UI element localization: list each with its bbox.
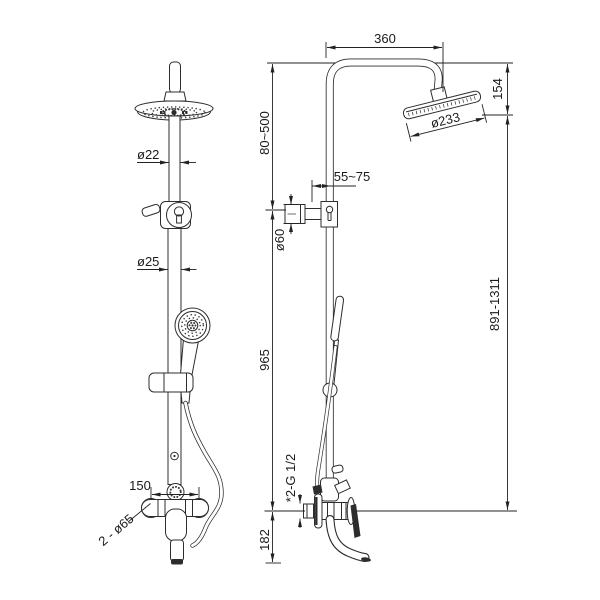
dim-label-55-75: 55~75 (334, 169, 371, 184)
dim-80-500: 80~500 (257, 64, 286, 210)
dim-label-o25: ø25 (137, 254, 159, 269)
aerator (171, 559, 183, 565)
dim-label-o22: ø22 (137, 147, 159, 162)
dim-label-154: 154 (490, 78, 505, 100)
dim-label-g12: *2-G 1/2 (283, 454, 298, 502)
upper-pipe-front (169, 116, 180, 203)
dim-label-891-1311: 891-1311 (487, 277, 502, 331)
dim-150: 150 (129, 478, 199, 500)
mixer-side (304, 494, 372, 562)
spout-front (171, 540, 184, 561)
dim-label-o60: ø60 (272, 229, 287, 251)
shower-hose-front (186, 403, 222, 546)
technical-drawing-page: ø22 ø25 150 2 - ø65 (0, 0, 600, 600)
dim-label-150: 150 (129, 478, 151, 493)
dim-label-2-o65: 2 - ø65 (95, 511, 136, 549)
mixer-handle-front (166, 509, 187, 541)
dim-o22: ø22 (137, 147, 196, 163)
dim-154: 154 (482, 64, 513, 115)
front-view: ø22 ø25 150 2 - ø65 (95, 62, 221, 565)
spout-side (330, 520, 371, 563)
dim-182: 182 (257, 512, 281, 563)
shower-system-technical-drawing: ø22 ø25 150 2 - ø65 (0, 0, 600, 600)
lower-pipe-front (168, 229, 181, 485)
dim-o25: ø25 (137, 254, 197, 270)
dim-label-182: 182 (257, 529, 272, 551)
dim-2-o65: 2 - ø65 (95, 504, 150, 549)
dim-label-965: 965 (257, 349, 272, 371)
bracket-clamp-side (321, 202, 338, 228)
side-view: ø233 (257, 31, 517, 563)
dim-55-75: 55~75 (312, 169, 370, 202)
wall-bracket-front (141, 202, 191, 229)
shower-column-side (330, 63, 439, 480)
slider-holder-front (149, 373, 193, 392)
dim-g12: *2-G 1/2 (283, 454, 300, 528)
dim-label-80-500: 80~500 (257, 111, 272, 155)
dim-label-360: 360 (374, 31, 396, 46)
wall-bracket-side (285, 205, 321, 224)
dim-891-1311: 891-1311 (487, 116, 508, 510)
arm-end-front (164, 62, 186, 101)
